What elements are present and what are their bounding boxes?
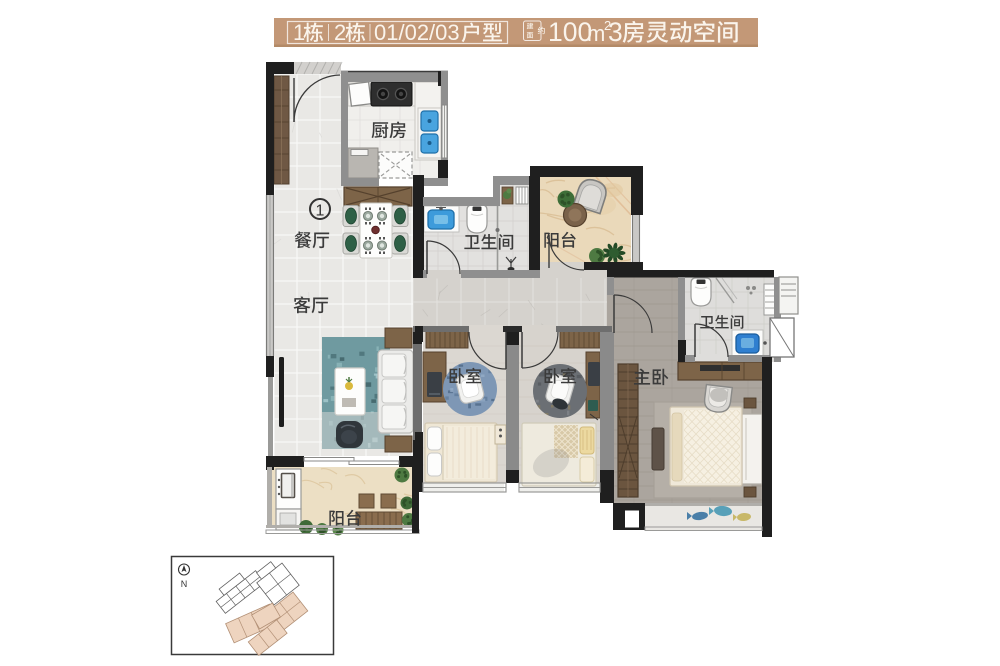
svg-text:m: m — [587, 21, 605, 46]
svg-text:N: N — [181, 579, 188, 589]
svg-text:1: 1 — [316, 203, 325, 220]
svg-text:3: 3 — [608, 17, 623, 47]
svg-text:1: 1 — [293, 20, 305, 45]
svg-text:01/02/03: 01/02/03 — [374, 20, 460, 45]
svg-text:2: 2 — [334, 20, 346, 45]
svg-text:100: 100 — [548, 17, 592, 47]
